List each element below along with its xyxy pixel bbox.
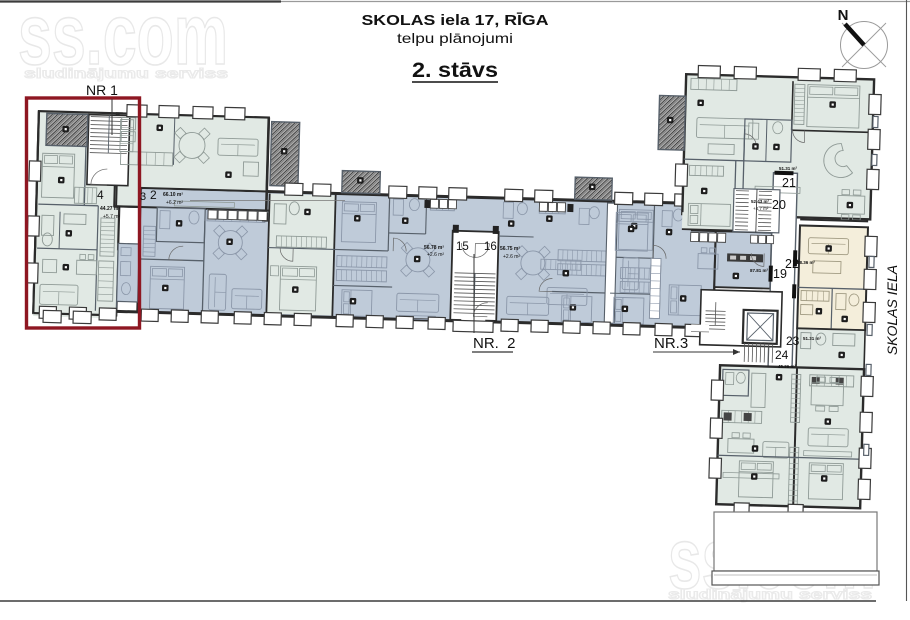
svg-text:21: 21 [782,176,796,190]
svg-text:SKOLAS iela 17, RĪGA: SKOLAS iela 17, RĪGA [362,12,550,29]
svg-text:+5.7 m²: +5.7 m² [103,214,120,220]
svg-text:+2.6 m²: +2.6 m² [427,252,444,258]
svg-text:sludinājumu serviss: sludinājumu serviss [668,586,872,602]
svg-text:3: 3 [140,191,146,203]
svg-text:4: 4 [97,188,104,202]
svg-text:44.27 m²: 44.27 m² [100,206,120,212]
svg-text:2. stāvs: 2. stāvs [412,59,498,82]
svg-text:51.31 m²: 51.31 m² [803,336,822,341]
svg-text:2: 2 [150,188,157,202]
svg-text:N: N [838,7,849,24]
svg-text:56.78 m²: 56.78 m² [424,245,444,251]
svg-text:15: 15 [456,241,469,253]
svg-text:+6.2 m²: +6.2 m² [166,200,183,206]
svg-text:+2.6 m²: +2.6 m² [503,254,520,260]
svg-text:NR. 2: NR. 2 [473,335,516,352]
svg-text:20: 20 [772,198,786,212]
svg-text:19: 19 [773,267,787,281]
svg-text:NR.3: NR.3 [654,335,688,352]
svg-text:24: 24 [775,348,789,362]
svg-text:51.31 m²: 51.31 m² [779,166,798,171]
svg-text:87.81 m²: 87.81 m² [750,268,769,273]
svg-text:sludinājumu serviss: sludinājumu serviss [24,65,228,81]
svg-text:+4.7 m²: +4.7 m² [753,206,769,211]
svg-text:telpu plānojumi: telpu plānojumi [397,30,513,46]
svg-text:NR 1: NR 1 [86,82,118,98]
svg-text:52.43 m²: 52.43 m² [751,199,770,204]
svg-text:28.36 m²: 28.36 m² [797,260,816,265]
svg-text:16: 16 [484,241,497,253]
svg-text:56.75 m²: 56.75 m² [500,246,520,252]
svg-text:45.26 m²: 45.26 m² [778,364,797,369]
svg-text:66.10 m²: 66.10 m² [163,192,183,198]
svg-text:23: 23 [786,334,800,348]
svg-text:SKOLAS IELA: SKOLAS IELA [884,265,900,355]
